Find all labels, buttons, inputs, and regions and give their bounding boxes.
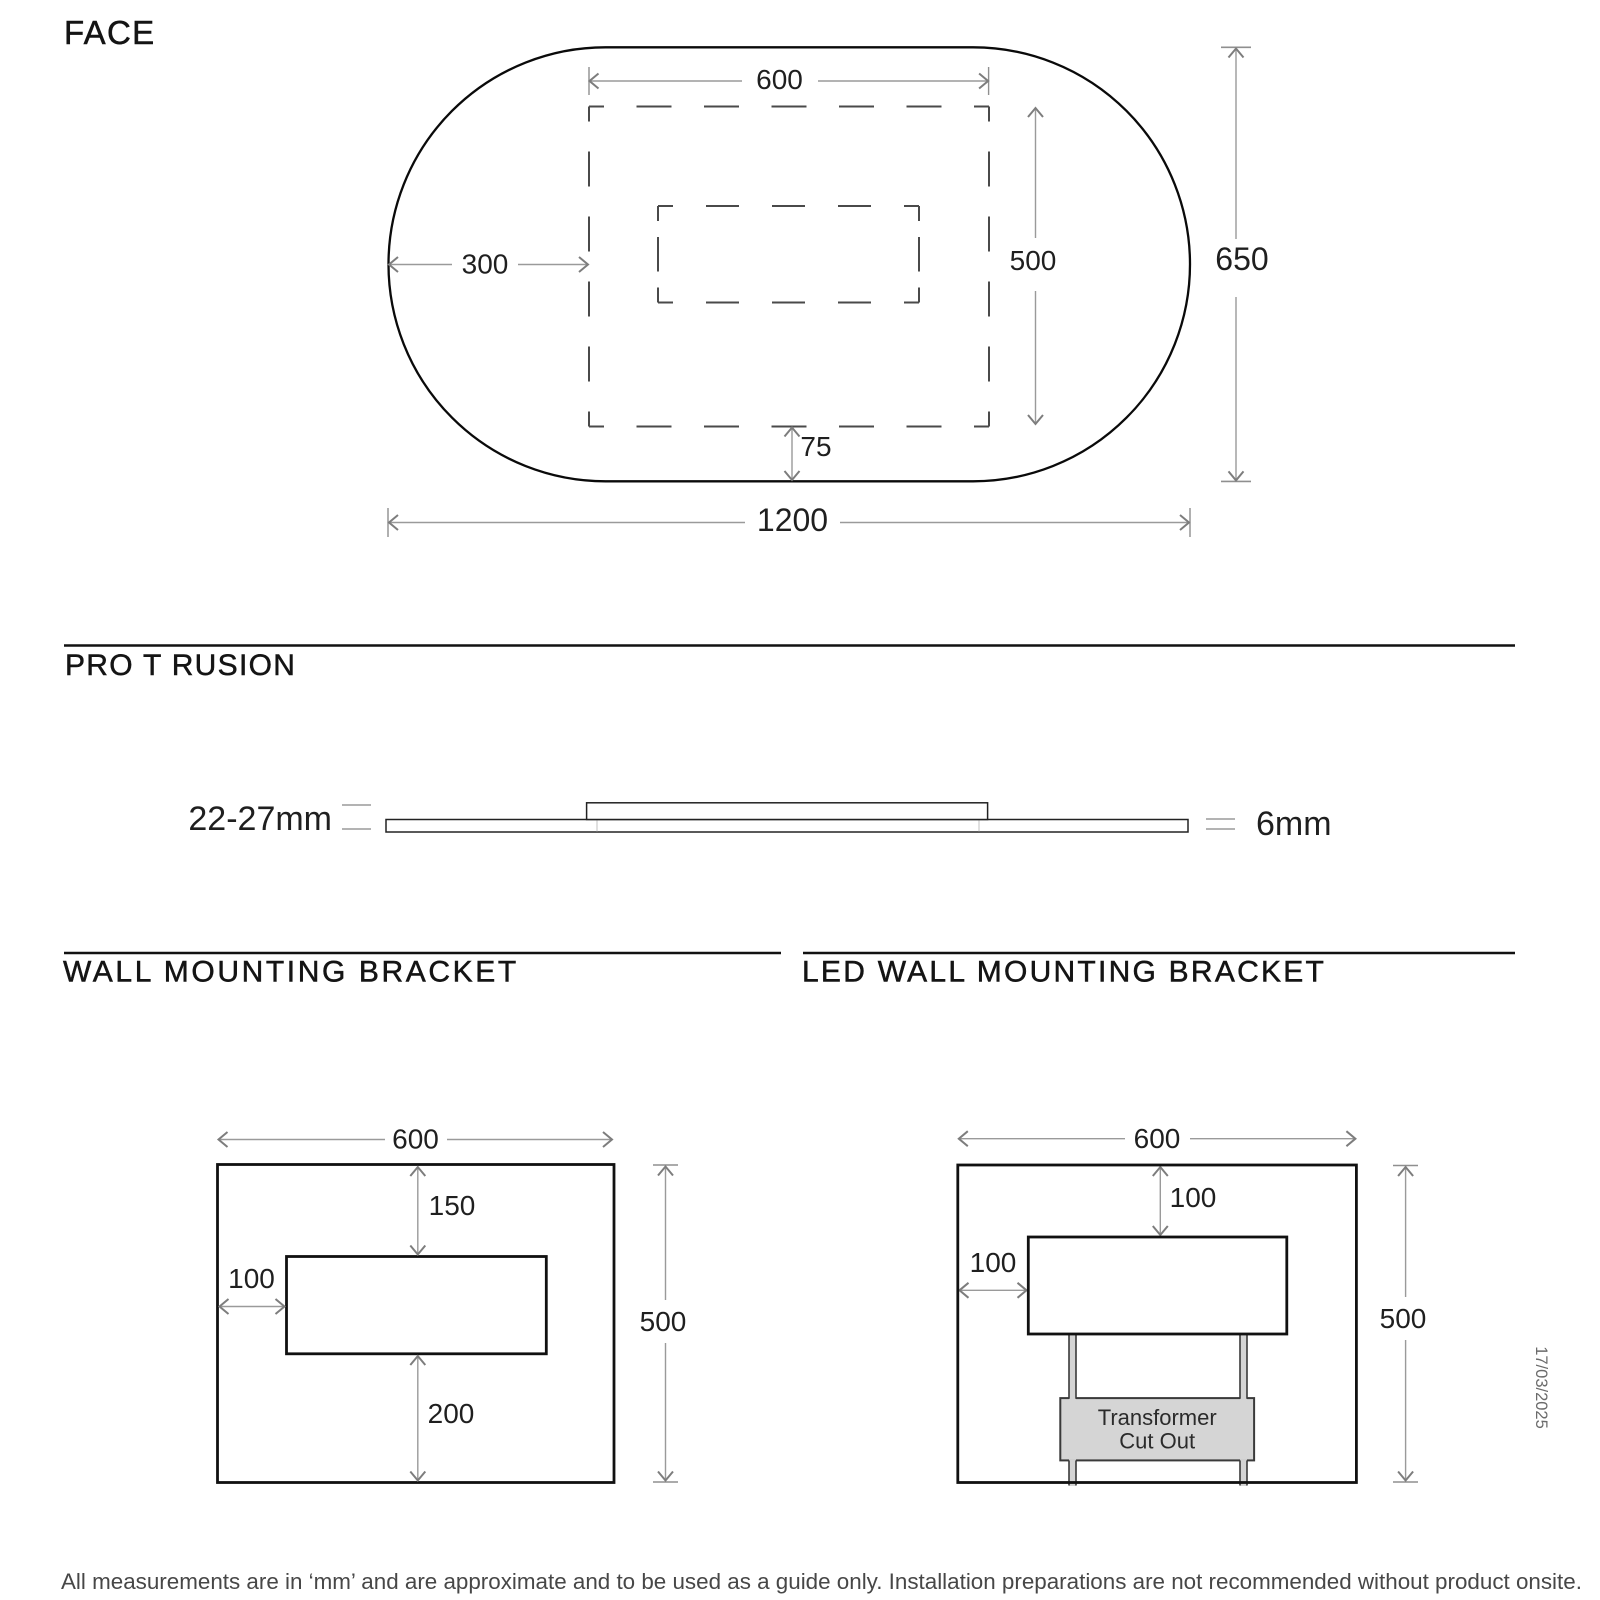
svg-text:200: 200 — [428, 1398, 475, 1429]
svg-text:Cut Out: Cut Out — [1119, 1429, 1195, 1454]
svg-text:100: 100 — [970, 1247, 1017, 1278]
svg-text:150: 150 — [429, 1190, 476, 1221]
svg-text:100: 100 — [1170, 1182, 1217, 1213]
svg-text:22-27mm: 22-27mm — [188, 800, 332, 838]
svg-text:300: 300 — [462, 249, 509, 280]
svg-text:500: 500 — [1010, 245, 1057, 276]
svg-text:PRO T RUSION: PRO T RUSION — [65, 649, 296, 682]
svg-text:17/03/2025: 17/03/2025 — [1532, 1346, 1550, 1429]
svg-text:600: 600 — [1134, 1123, 1181, 1154]
svg-text:LED WALL MOUNTING BRACKET: LED WALL MOUNTING BRACKET — [802, 956, 1326, 989]
svg-text:600: 600 — [756, 64, 803, 95]
svg-text:500: 500 — [640, 1306, 687, 1337]
svg-text:75: 75 — [800, 431, 831, 462]
svg-text:WALL MOUNTING BRACKET: WALL MOUNTING BRACKET — [63, 956, 519, 989]
svg-text:1200: 1200 — [757, 502, 828, 538]
svg-text:500: 500 — [1380, 1303, 1427, 1334]
svg-text:650: 650 — [1215, 241, 1268, 277]
svg-text:600: 600 — [392, 1124, 439, 1155]
svg-text:All measurements are in ‘mm’ a: All measurements are in ‘mm’ and are app… — [61, 1569, 1582, 1594]
svg-text:100: 100 — [228, 1263, 275, 1294]
svg-text:6mm: 6mm — [1256, 805, 1332, 843]
svg-text:Transformer: Transformer — [1098, 1405, 1217, 1430]
svg-text:FACE: FACE — [64, 14, 155, 51]
